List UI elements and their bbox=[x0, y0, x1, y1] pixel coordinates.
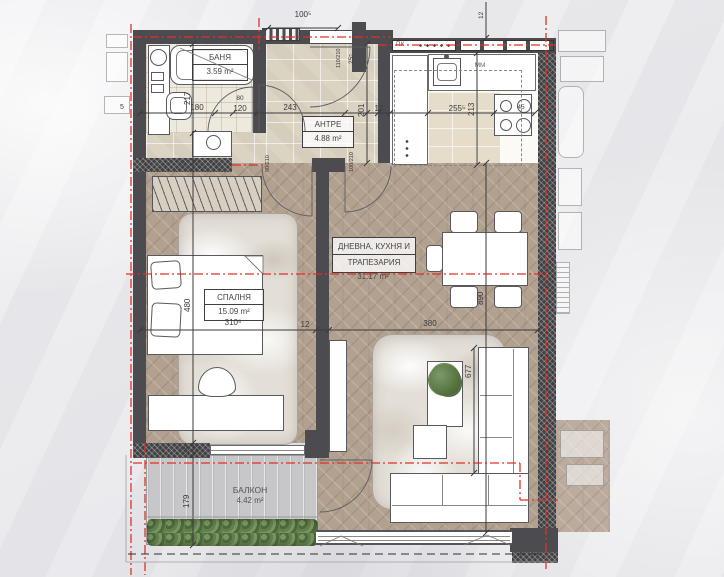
dim-left-edge: 5 bbox=[116, 104, 128, 111]
dining-chair bbox=[494, 211, 522, 233]
bathroom-name: БАНЯ bbox=[193, 50, 247, 65]
sofa-cushion-line bbox=[480, 395, 512, 396]
dim-bath-door-niche: 120 bbox=[228, 105, 252, 113]
wall-corner-bottom-right bbox=[510, 528, 558, 552]
upper-cabinet-strip: ПК bbox=[392, 40, 456, 51]
neighbor-fixture bbox=[558, 168, 582, 206]
dim-hall-depth: 201 bbox=[358, 95, 369, 125]
washbasin-icon bbox=[150, 49, 167, 66]
living-bottom-window bbox=[316, 530, 512, 545]
dining-chair bbox=[494, 286, 522, 308]
dim-bedroom-width: 310⁵ bbox=[204, 319, 262, 327]
sofa-cushion-line bbox=[480, 437, 512, 438]
living-name-line2: ТРАПЕЗАРИЯ bbox=[333, 255, 415, 271]
dim-bath-door: 80 bbox=[228, 96, 252, 103]
dim-living-door: 100/210 bbox=[350, 148, 361, 176]
desk bbox=[148, 395, 284, 431]
upper-cabinet-label: ПК bbox=[396, 42, 405, 48]
dim-balcony-depth: 179 bbox=[183, 486, 194, 516]
wall-hall-kitchen bbox=[378, 42, 390, 163]
wall-bathroom-right bbox=[253, 30, 266, 133]
neighbor-radiator bbox=[556, 262, 570, 314]
bedroom-area: 15.09 m² bbox=[205, 305, 263, 319]
balcony-planter bbox=[147, 519, 318, 546]
bedroom-label-box: СПАЛНЯ 15.09 m² bbox=[204, 289, 264, 321]
dim-entry-opening: 100⁵ bbox=[283, 11, 323, 19]
dim-living-depth: 890 bbox=[477, 283, 488, 313]
dim-bedroom-depth: 480 bbox=[184, 289, 195, 321]
dim-balcony-wall-25: 25 bbox=[185, 440, 196, 458]
neighbor-fixture bbox=[558, 212, 582, 250]
neighbor-cabinet bbox=[560, 56, 604, 82]
balcony-area: 4.42 m² bbox=[210, 496, 290, 505]
dim-kitchen-depth: 213 bbox=[468, 94, 479, 124]
neighbor-fixture bbox=[558, 86, 584, 158]
window-glass-line bbox=[318, 536, 510, 537]
neighbor-fixture bbox=[560, 430, 604, 458]
sofa-backrest-line bbox=[513, 349, 514, 473]
hallway-area: 4.88 m² bbox=[303, 132, 353, 146]
hallway-name: АНТРЕ bbox=[303, 117, 353, 132]
dim-living-width: 380 bbox=[410, 320, 450, 328]
sofa-backrest-line bbox=[392, 505, 527, 506]
bathroom-area: 3.59 m² bbox=[193, 65, 247, 79]
dim-stove-gap: 45 bbox=[512, 105, 530, 112]
upper-cabinet-cells bbox=[460, 40, 554, 51]
side-table bbox=[413, 425, 447, 459]
bedroom-name: СПАЛНЯ bbox=[205, 290, 263, 305]
wall-right-hatched bbox=[538, 53, 556, 531]
microwave-label: ММ bbox=[468, 63, 492, 70]
wall-left bbox=[133, 30, 146, 458]
wardrobe bbox=[152, 176, 262, 212]
bathroom-fixture bbox=[151, 72, 164, 81]
dim-bath-depth: 217 bbox=[184, 84, 195, 112]
sofa-horizontal bbox=[390, 473, 529, 523]
dim-partition-12: 12 bbox=[297, 321, 313, 329]
bathroom-fixture bbox=[151, 84, 164, 93]
dining-chair bbox=[450, 286, 478, 308]
sofa-vertical bbox=[478, 347, 529, 475]
dim-hall-corner-25: 25⁵ bbox=[349, 46, 360, 72]
dining-chair bbox=[450, 211, 478, 233]
living-name-line1: ДНЕВНА, КУХНЯ И bbox=[333, 238, 415, 255]
window-glass-line bbox=[211, 450, 304, 451]
dim-sofa-length: 677 bbox=[465, 356, 476, 386]
dim-wall-top-12: 12 bbox=[479, 4, 490, 26]
dim-bedroom-door: 90/210 bbox=[266, 150, 277, 178]
potted-plant-icon bbox=[429, 364, 461, 396]
drain-grate bbox=[262, 28, 300, 41]
neighbor-fixture bbox=[106, 34, 128, 48]
neighbor-cabinet bbox=[558, 30, 606, 52]
wall-partition bbox=[316, 163, 329, 438]
bathroom-label-box: БАНЯ 3.59 m² bbox=[192, 49, 248, 81]
sofa-cushion-line bbox=[488, 475, 489, 505]
balcony-label: БАЛКОН 4.42 m² bbox=[210, 486, 290, 505]
washing-machine-drum bbox=[206, 135, 221, 150]
hallway-label-box: АНТРЕ 4.88 m² bbox=[302, 116, 354, 148]
pillow bbox=[150, 260, 182, 290]
pillow bbox=[150, 302, 182, 338]
floor-plan-canvas: ПК БАНЯ 3.59 m² АНТРЕ 4.88 m² ДНЕВНА, КУ… bbox=[0, 0, 724, 577]
balcony-name: БАЛКОН bbox=[210, 486, 290, 496]
wall-corner-hatched bbox=[512, 552, 558, 563]
tv-unit bbox=[329, 340, 347, 452]
dim-bath-width: 180 bbox=[177, 104, 217, 112]
dim-wall-12: 12 bbox=[370, 105, 388, 113]
upper-cabinets-dashed bbox=[394, 70, 522, 166]
sofa-cushion-line bbox=[442, 475, 443, 505]
dining-table bbox=[442, 232, 528, 286]
bedroom-balcony-window bbox=[210, 445, 305, 455]
neighbor-fixture bbox=[106, 52, 128, 82]
living-area: 31.17 m² bbox=[332, 272, 414, 281]
neighbor-fixture bbox=[566, 464, 604, 486]
dim-hall-width: 243 bbox=[270, 104, 310, 112]
dining-chair bbox=[426, 245, 443, 272]
kitchen-tap-icon bbox=[444, 54, 449, 59]
living-label-box: ДНЕВНА, КУХНЯ И ТРАПЕЗАРИЯ bbox=[332, 237, 416, 273]
wall-balcony-door-post bbox=[305, 430, 329, 458]
cabinet-dots bbox=[417, 42, 453, 49]
wall-bathroom-bottom-hatched bbox=[133, 158, 232, 172]
wall-bedroom-balcony-hatched bbox=[133, 443, 210, 458]
window-glass-line bbox=[318, 540, 510, 541]
dim-hall-door: 110/210 bbox=[337, 42, 348, 74]
